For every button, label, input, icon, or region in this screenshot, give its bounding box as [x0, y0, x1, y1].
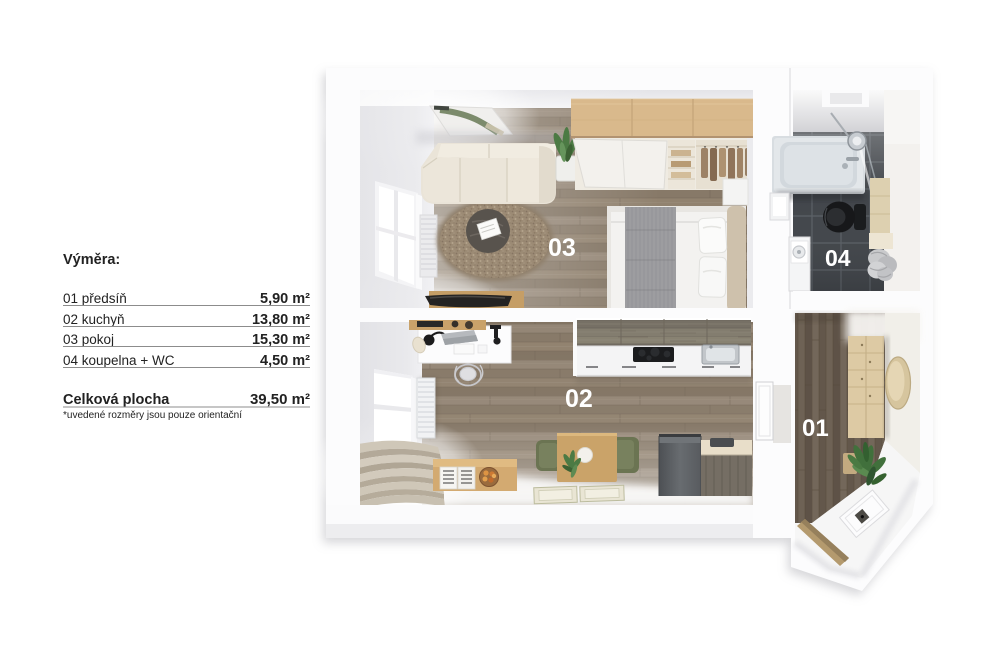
svg-text:5,90 m²: 5,90 m²	[260, 291, 310, 307]
svg-text:13,80 m²: 13,80 m²	[252, 312, 310, 328]
svg-text:04: 04	[825, 245, 851, 271]
svg-text:*uvedené rozměry jsou pouze or: *uvedené rozměry jsou pouze orientační	[63, 410, 242, 421]
svg-text:39,50 m²: 39,50 m²	[250, 391, 310, 408]
svg-text:Celková plocha: Celková plocha	[63, 392, 170, 408]
svg-text:03 pokoj: 03 pokoj	[63, 332, 114, 347]
svg-text:02 kuchyň: 02 kuchyň	[63, 312, 125, 327]
svg-text:Výměra:: Výměra:	[63, 252, 120, 268]
svg-text:01: 01	[802, 415, 829, 442]
svg-text:01 předsíň: 01 předsíň	[63, 291, 127, 306]
svg-text:4,50 m²: 4,50 m²	[260, 353, 310, 369]
svg-text:03: 03	[548, 234, 576, 262]
svg-text:15,30 m²: 15,30 m²	[252, 332, 310, 348]
svg-text:04 koupelna + WC: 04 koupelna + WC	[63, 353, 175, 368]
svg-text:02: 02	[565, 385, 593, 413]
